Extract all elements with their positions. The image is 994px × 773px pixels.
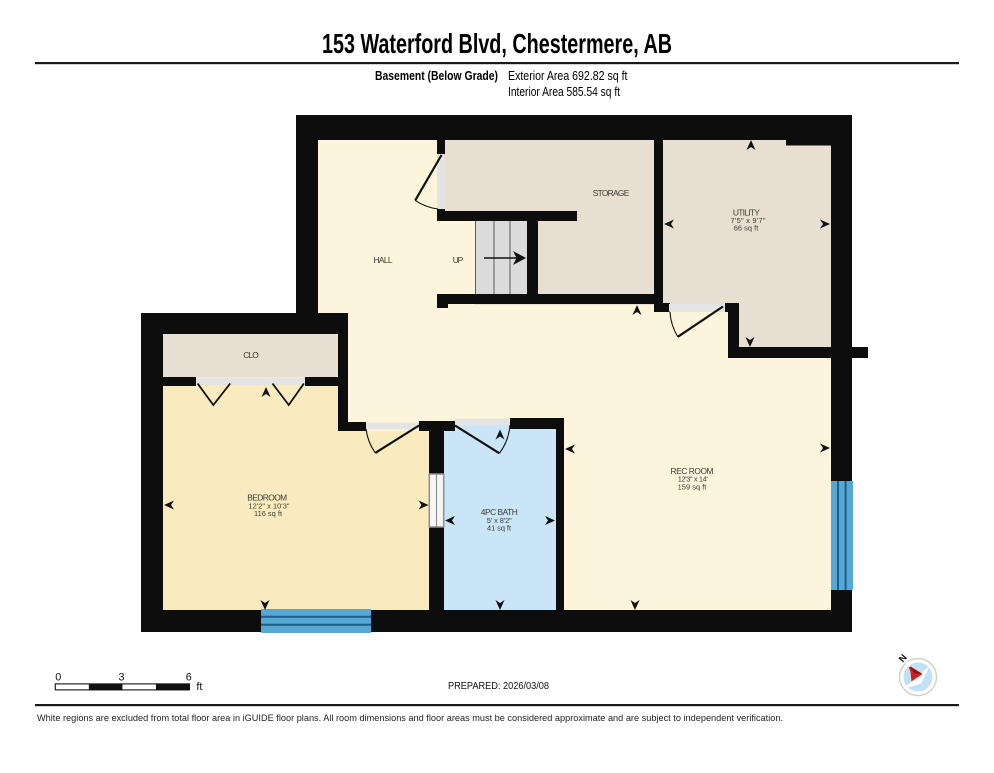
- svg-text:Exterior Area 692.82 sq ft: Exterior Area 692.82 sq ft: [508, 69, 628, 83]
- svg-text:41 sq ft: 41 sq ft: [487, 524, 511, 533]
- svg-text:6: 6: [186, 672, 192, 684]
- svg-text:116 sq ft: 116 sq ft: [254, 509, 282, 518]
- svg-text:159 sq ft: 159 sq ft: [678, 482, 707, 491]
- svg-text:HALL: HALL: [374, 255, 393, 265]
- svg-text:3: 3: [118, 672, 124, 684]
- svg-text:153 Waterford Blvd, Chestermer: 153 Waterford Blvd, Chestermere, AB: [322, 28, 672, 59]
- svg-text:STORAGE: STORAGE: [593, 188, 630, 198]
- svg-text:Basement (Below Grade): Basement (Below Grade): [375, 69, 498, 83]
- svg-text:0: 0: [55, 672, 61, 684]
- svg-text:ft: ft: [196, 681, 202, 693]
- svg-text:CLO: CLO: [243, 350, 259, 360]
- svg-text:White regions are excluded fro: White regions are excluded from total fl…: [37, 713, 783, 723]
- svg-text:Interior Area 585.54 sq ft: Interior Area 585.54 sq ft: [508, 85, 620, 99]
- svg-text:PREPARED: 2026/03/08: PREPARED: 2026/03/08: [448, 680, 549, 692]
- svg-text:UP: UP: [453, 255, 464, 265]
- svg-text:66 sq ft: 66 sq ft: [734, 224, 759, 233]
